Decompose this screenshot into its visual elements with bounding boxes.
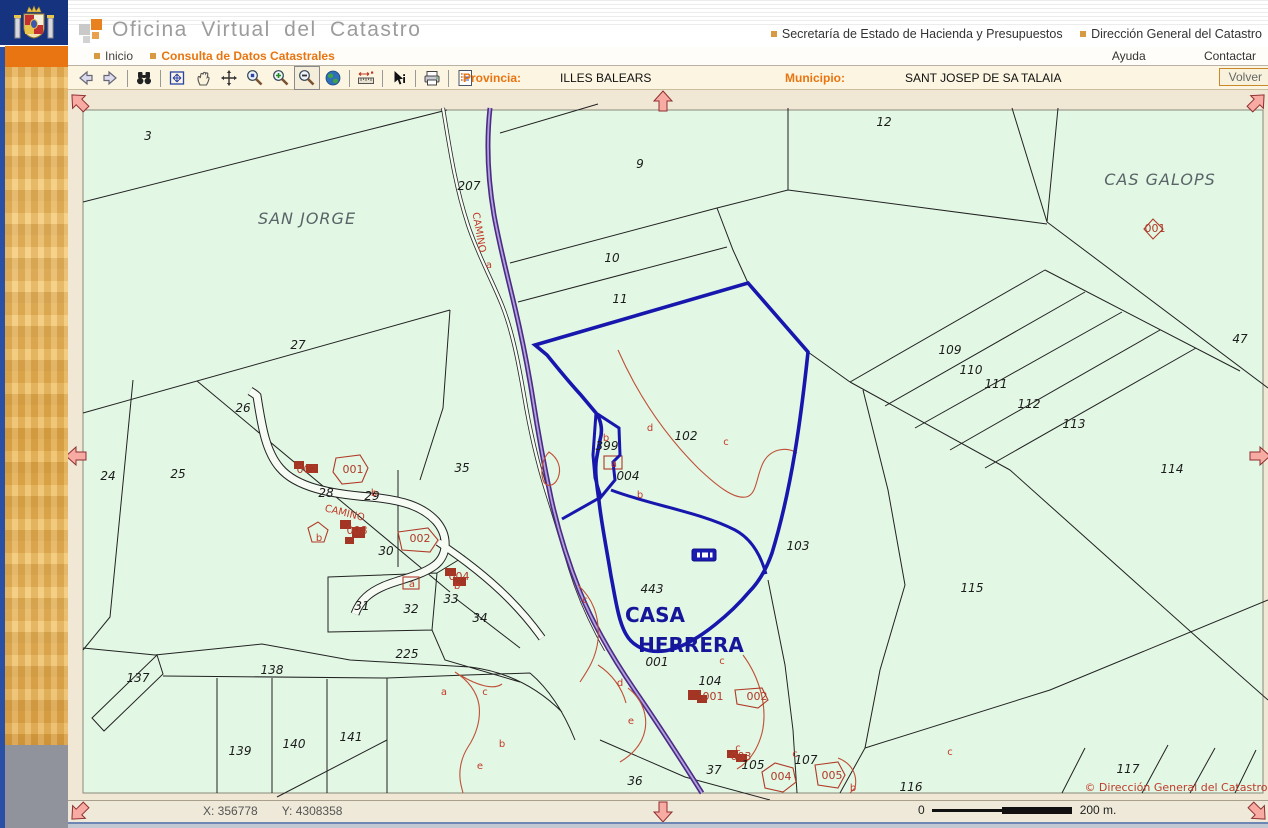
map-svg: 3910111220727262425352829303132333436374…: [68, 90, 1268, 828]
bullet-icon: [1080, 31, 1086, 37]
map-label: c: [582, 595, 588, 606]
zoom-out-button[interactable]: [294, 66, 320, 90]
map-label: 116: [900, 780, 923, 794]
map-label: 207: [458, 179, 481, 193]
sidebar-gray-block: [5, 745, 68, 828]
map-label: b: [499, 739, 505, 750]
scale-bar-segment: [932, 809, 1002, 812]
map-label: 24: [100, 469, 115, 483]
zoom-in-button[interactable]: [268, 66, 294, 90]
map-label: 9: [636, 157, 644, 171]
menu-consulta-datos[interactable]: Consulta de Datos Catastrales: [161, 49, 334, 63]
map-label: 117: [1117, 762, 1140, 776]
catastro-logo-icon: [78, 17, 104, 43]
cursor-coordinates: X: 356778Y: 4308358: [203, 804, 366, 818]
measure-ruler-icon: [356, 68, 376, 88]
printer-icon: [422, 68, 442, 88]
scale-bar-segment: [1002, 807, 1072, 814]
world-button[interactable]: [320, 66, 346, 90]
map-label: 28: [318, 486, 334, 500]
map-label: d: [617, 678, 623, 689]
map-label: 33: [443, 592, 458, 606]
info-pointer-icon: [389, 68, 409, 88]
full-extent-icon: [167, 68, 187, 88]
map-label: c: [792, 749, 798, 760]
map-label: 001: [646, 655, 669, 669]
map-label: 003: [731, 750, 752, 763]
map-label: 140: [283, 737, 306, 751]
map-label: 3: [144, 129, 152, 143]
coordinate-x: X: 356778: [203, 804, 258, 818]
toolbar-separator: [127, 70, 128, 87]
toolbar-separator: [415, 70, 416, 87]
toolbar-separator: [160, 70, 161, 87]
map-label: 001: [1145, 222, 1166, 235]
forward-arrow-icon: [101, 68, 121, 88]
map-label: 34: [472, 611, 487, 625]
map-label: 002: [410, 532, 431, 545]
map-label: SAN JORGE: [258, 209, 356, 228]
menu-contactar[interactable]: Contactar: [1204, 49, 1256, 63]
toolbar-separator: [448, 70, 449, 87]
map-label: 004: [617, 469, 640, 483]
zoom-in-icon: [271, 68, 291, 88]
map-label: 32: [403, 602, 418, 616]
map-label: 103: [787, 539, 810, 553]
map-label: 111: [985, 377, 1008, 391]
map-label: b: [454, 581, 460, 592]
map-label: 31: [354, 599, 369, 613]
map-label: b: [371, 488, 377, 499]
map-label: 443: [641, 582, 664, 596]
menu-ayuda[interactable]: Ayuda: [1112, 49, 1146, 63]
move-button[interactable]: [216, 66, 242, 90]
map-label: 113: [1063, 417, 1086, 431]
toolbar-separator: [349, 70, 350, 87]
map-label: 109: [939, 343, 962, 357]
map-label: a: [409, 579, 415, 590]
find-button[interactable]: [131, 66, 157, 90]
map-label: 110: [960, 363, 983, 377]
toolbar-separator: [382, 70, 383, 87]
map-label: 37: [706, 763, 722, 777]
map-label: 001: [343, 463, 364, 476]
globe-icon: [323, 68, 343, 88]
map-label: c: [719, 656, 725, 667]
move-cross-icon: [219, 68, 239, 88]
pan-button[interactable]: [190, 66, 216, 90]
map-label: 102: [675, 429, 698, 443]
map-label: 001: [703, 690, 724, 703]
municipio-value: SANT JOSEP DE SA TALAIA: [905, 71, 1062, 85]
map-label: HERRERA: [638, 633, 744, 657]
map-frame: 3910111220727262425352829303132333436374…: [68, 90, 1268, 828]
municipio-label: Municipio:: [785, 71, 845, 85]
map-label: 11: [612, 292, 627, 306]
coat-of-arms: [0, 0, 68, 47]
map-label: a: [486, 260, 492, 271]
map-label: © Dirección General del Catastro: [1084, 781, 1267, 794]
map-label: 005: [822, 769, 843, 782]
map-label: 104: [699, 674, 722, 688]
map-label: 002: [297, 463, 318, 476]
map-label: 002: [747, 690, 768, 703]
map-label: 26: [235, 401, 251, 415]
scale-bar: 0 200 m.: [918, 803, 1116, 817]
pan-north-arrow[interactable]: [654, 91, 672, 111]
map-label: c: [735, 743, 741, 754]
map-label: c: [723, 437, 729, 448]
map-label: e: [628, 716, 634, 727]
map-label: 12: [876, 115, 891, 129]
zoom-rect-icon: [245, 68, 265, 88]
map-label: e: [477, 761, 483, 772]
scale-zero-label: 0: [918, 803, 925, 817]
zoom-out-icon: [297, 68, 317, 88]
map-label: 35: [454, 461, 469, 475]
map-label: 004: [771, 770, 792, 783]
map-label: d: [647, 423, 653, 434]
back-button[interactable]: [72, 66, 98, 90]
map-label: 114: [1161, 462, 1184, 476]
map-label: CAS GALOPS: [1104, 170, 1216, 189]
forward-button[interactable]: [98, 66, 124, 90]
map-label: 47: [1232, 332, 1248, 346]
map-label: 008: [347, 524, 368, 537]
volver-button[interactable]: Volver: [1219, 68, 1268, 86]
map-label: 141: [340, 730, 363, 744]
coordinate-y: Y: 4308358: [282, 804, 343, 818]
map-label: 137: [127, 671, 150, 685]
map-label: b: [850, 783, 856, 794]
map-label: a: [611, 459, 617, 470]
scale-end-label: 200 m.: [1080, 803, 1117, 817]
map-label: 107: [795, 753, 818, 767]
map-label: 27: [290, 338, 306, 352]
map-label: 36: [627, 774, 643, 788]
map-label: b: [316, 533, 322, 544]
map-label: 25: [170, 467, 185, 481]
menu-bar: Inicio Consulta de Datos Catastrales Ayu…: [68, 47, 1268, 66]
map-label: c: [947, 747, 953, 758]
map-label: 139: [229, 744, 252, 758]
bullet-icon: [150, 53, 156, 59]
map-label: 30: [378, 544, 394, 558]
bullet-icon: [771, 31, 777, 37]
link-dgc[interactable]: Dirección General del Catastro: [1091, 27, 1262, 41]
provincia-label: Provincia:: [463, 71, 521, 85]
map-label: CASA: [625, 603, 686, 627]
page-title: Oficina Virtual del Catastro: [112, 18, 421, 42]
header: Oficina Virtual del Catastro Secretaría …: [68, 0, 1268, 47]
window-bottom-edge: [68, 822, 1268, 828]
sidebar-orange-block: [5, 46, 68, 67]
info-button[interactable]: [386, 66, 412, 90]
zoom-rect-button[interactable]: [242, 66, 268, 90]
binoculars-icon: [134, 68, 154, 88]
print-button[interactable]: [419, 66, 445, 90]
full-extent-button[interactable]: [164, 66, 190, 90]
link-secretaria[interactable]: Secretaría de Estado de Hacienda y Presu…: [782, 27, 1063, 41]
provincia-value: ILLES BALEARS: [560, 71, 651, 85]
map-label: 10: [604, 251, 620, 265]
map-label: c: [482, 687, 488, 698]
map-label: a: [441, 687, 447, 698]
pan-hand-icon: [193, 68, 213, 88]
spain-coat-of-arms-icon: [9, 2, 59, 44]
parcel-marker[interactable]: [692, 549, 716, 561]
back-arrow-icon: [75, 68, 95, 88]
map-label: 112: [1018, 397, 1041, 411]
map-toolbar: Provincia: ILLES BALEARS Municipio: SANT…: [68, 66, 1268, 90]
menu-inicio[interactable]: Inicio: [105, 49, 133, 63]
bullet-icon: [94, 53, 100, 59]
map-label: 225: [396, 647, 419, 661]
measure-button[interactable]: [353, 66, 379, 90]
map-label: b: [637, 490, 643, 501]
sidebar-city-photo: [5, 67, 68, 745]
map-label: b: [603, 433, 609, 444]
map-label: 115: [961, 581, 984, 595]
map-label: 138: [261, 663, 284, 677]
